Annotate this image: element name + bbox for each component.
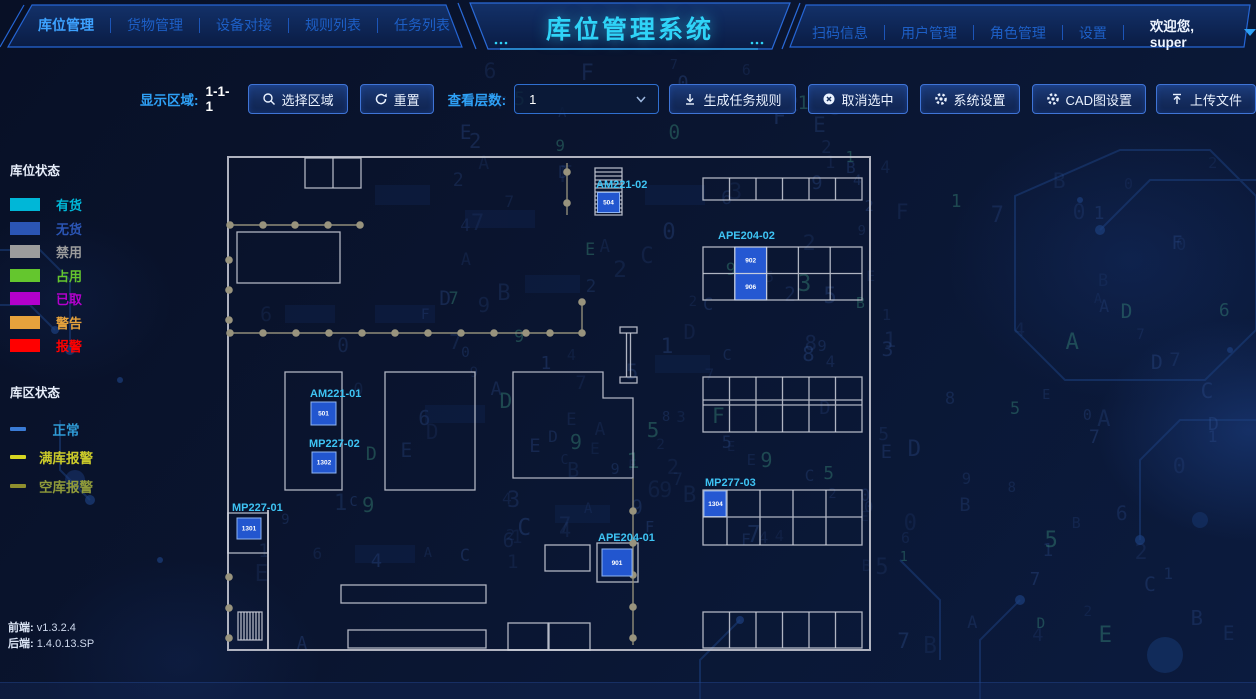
matrix-char: 7 <box>1030 572 1040 589</box>
matrix-char: A <box>1097 408 1110 430</box>
nav-item-settings[interactable]: 设置 <box>1079 23 1107 43</box>
main-nav: 库位管理 货物管理 设备对接 规则列表 任务列表 <box>38 15 450 35</box>
upload-icon <box>1170 92 1184 106</box>
matrix-char: E <box>881 444 892 463</box>
matrix-char: 4 <box>1032 627 1043 646</box>
matrix-char: 1 <box>951 194 962 212</box>
location-label: MP227-01 <box>232 502 283 514</box>
nav-item-location-mgmt[interactable]: 库位管理 <box>38 15 94 35</box>
nav-divider <box>288 18 289 33</box>
location-cell-value: 504 <box>603 200 614 207</box>
status-label: 报警 <box>56 336 82 355</box>
status-label: 有货 <box>56 195 82 214</box>
button-label: 重置 <box>394 90 420 109</box>
matrix-char: 6 <box>901 531 910 546</box>
legend-item-empty-alarm: 空库报警 <box>10 472 98 501</box>
matrix-char: 0 <box>1173 456 1186 478</box>
generate-rules-icon <box>683 92 697 106</box>
nav-divider <box>973 25 974 40</box>
legend-panel: 库位状态 有货 无货 禁用 占用 已取 警告 报警 库区状态 正常 满库报警 <box>10 160 98 500</box>
conveyor-lines <box>225 163 637 645</box>
matrix-char: 7 <box>670 59 678 72</box>
backend-version: 后端: 1.4.0.13.SP <box>8 636 94 652</box>
legend-item-occupied: 占用 <box>10 264 98 288</box>
layers-label: 查看层数: <box>448 89 507 109</box>
system-settings-button[interactable]: 系统设置 <box>920 84 1020 114</box>
matrix-char: B <box>1098 273 1108 290</box>
layers-selected-value: 1 <box>529 92 634 107</box>
matrix-char: B <box>1053 170 1066 191</box>
hatched-area <box>238 612 262 640</box>
matrix-char: 6 <box>484 60 497 81</box>
button-label: 上传文件 <box>1190 90 1242 109</box>
location-label: AM221-01 <box>310 388 361 400</box>
matrix-char: 1 <box>1163 566 1173 582</box>
display-area-value: 1-1-1 <box>206 84 234 114</box>
nav-item-task-list[interactable]: 任务列表 <box>394 15 450 35</box>
matrix-char: 5 <box>1044 529 1057 551</box>
matrix-char: B <box>923 635 937 658</box>
legend-item-warning: 警告 <box>10 311 98 335</box>
matrix-char: 9 <box>555 138 565 154</box>
nav-divider <box>1062 25 1063 40</box>
location-cell-value: 1304 <box>708 501 723 508</box>
location-status-title: 库位状态 <box>10 160 98 179</box>
matrix-char: 2 <box>1083 605 1092 620</box>
matrix-char: 0 <box>1083 409 1092 424</box>
status-color-swatch <box>10 198 40 211</box>
matrix-char: 2 <box>469 131 481 152</box>
matrix-char: 7 <box>991 205 1004 227</box>
user-nav: 扫码信息 用户管理 角色管理 设置 欢迎您, super <box>812 15 1256 50</box>
location-mp227-01[interactable]: MP227-01 1301 <box>232 502 283 539</box>
matrix-char: 1 <box>1094 205 1105 223</box>
frontend-version: 前端: v1.3.2.4 <box>8 620 94 636</box>
footer-band <box>0 682 1256 699</box>
chevron-down-icon <box>634 92 648 106</box>
area-status-title: 库区状态 <box>10 382 98 401</box>
cancel-selection-button[interactable]: 取消选中 <box>808 84 908 114</box>
location-label: APE204-02 <box>718 230 775 242</box>
nav-item-role-mgmt[interactable]: 角色管理 <box>990 23 1046 43</box>
area-status-label: 正常 <box>34 419 98 439</box>
matrix-char: 9 <box>962 472 971 488</box>
matrix-char: 1 <box>884 330 897 351</box>
location-cell-value: 1302 <box>317 460 332 467</box>
legend-item-disabled: 禁用 <box>10 240 98 264</box>
matrix-char: 0 <box>668 123 680 142</box>
status-label: 警告 <box>56 313 82 332</box>
matrix-char: C <box>1144 575 1156 595</box>
cancel-icon <box>822 92 836 106</box>
status-label: 已取 <box>56 289 82 308</box>
layers-select[interactable]: 1 <box>514 84 659 114</box>
status-color-swatch <box>10 339 40 352</box>
reset-button[interactable]: 重置 <box>360 84 434 114</box>
location-am221-01[interactable]: AM221-01 501 <box>310 388 361 425</box>
button-label: CAD图设置 <box>1066 90 1132 109</box>
user-dropdown-caret[interactable] <box>1244 29 1256 36</box>
status-color-swatch <box>10 316 40 329</box>
legend-item-full-alarm: 满库报警 <box>10 443 98 472</box>
rack-grid-ape204-02[interactable]: APE204-02 902 906 <box>703 230 862 300</box>
i-beam-column <box>620 327 637 383</box>
nav-item-rule-list[interactable]: 规则列表 <box>305 15 361 35</box>
legend-item-picked: 已取 <box>10 287 98 311</box>
rack-grid-bottom-right[interactable] <box>703 612 862 648</box>
area-line-swatch <box>10 455 26 459</box>
matrix-char: 1 <box>1208 429 1218 445</box>
legend-item-alarm: 报警 <box>10 334 98 358</box>
gear-icon <box>1046 92 1060 106</box>
matrix-char: F <box>896 202 909 223</box>
matrix-char: D <box>1208 416 1219 434</box>
rack-grid-middle-right[interactable] <box>703 377 862 432</box>
nav-item-device-dock[interactable]: 设备对接 <box>216 15 272 35</box>
area-status-legend: 库区状态 正常 满库报警 空库报警 <box>10 382 98 501</box>
backend-version-label: 后端: <box>8 638 34 650</box>
legend-item-no-goods: 无货 <box>10 217 98 241</box>
nav-divider <box>884 25 885 40</box>
status-color-swatch <box>10 245 40 258</box>
status-color-swatch <box>10 292 40 305</box>
matrix-char: A <box>1099 299 1109 316</box>
button-label: 取消选中 <box>842 90 894 109</box>
display-area-label: 显示区域: <box>140 89 199 109</box>
matrix-char: D <box>1151 353 1163 373</box>
search-icon <box>262 92 276 106</box>
location-mp227-02[interactable]: MP227-02 1302 <box>309 438 360 473</box>
status-color-swatch <box>10 222 40 235</box>
matrix-char: 3 <box>881 340 893 360</box>
button-label: 生成任务规则 <box>703 90 781 109</box>
matrix-char: 0 <box>904 513 917 535</box>
matrix-char: 0 <box>1176 237 1186 254</box>
location-cell-value: 902 <box>745 258 756 265</box>
welcome-text: 欢迎您, super <box>1150 15 1230 50</box>
location-ape204-01[interactable]: APE204-01 901 <box>598 532 655 576</box>
matrix-char: B <box>959 497 970 516</box>
gear-icon <box>934 92 948 106</box>
matrix-char: B <box>1191 608 1203 629</box>
matrix-char: F <box>1172 235 1183 253</box>
nav-item-goods-mgmt[interactable]: 货物管理 <box>127 15 183 35</box>
nav-divider <box>377 18 378 33</box>
matrix-char: 0 <box>1073 202 1086 223</box>
backend-version-value: 1.4.0.13.SP <box>37 638 95 650</box>
frontend-version-label: 前端: <box>8 622 34 634</box>
matrix-char: 4 <box>880 160 890 176</box>
nav-item-user-mgmt[interactable]: 用户管理 <box>901 23 957 43</box>
page-title: 库位管理系统 <box>470 10 790 46</box>
matrix-char: 7 <box>1169 351 1180 370</box>
generate-task-rules-button[interactable]: 生成任务规则 <box>669 84 795 114</box>
matrix-char: E <box>1098 624 1112 647</box>
location-label: MP277-03 <box>705 477 756 489</box>
matrix-char: 7 <box>1089 429 1100 447</box>
location-cell-value: 901 <box>612 560 623 567</box>
refresh-icon <box>374 92 388 106</box>
ghost-racks <box>285 185 710 563</box>
nav-divider <box>199 18 200 33</box>
matrix-char: 2 <box>1208 156 1217 171</box>
matrix-char: E <box>813 115 826 136</box>
select-area-button[interactable]: 选择区域 <box>248 84 348 114</box>
button-label: 选择区域 <box>282 90 334 109</box>
legend-item-normal: 正常 <box>10 415 98 444</box>
toolbar: 显示区域: 1-1-1 选择区域 重置 查看层数: 1 生成任务规则 取消选中 … <box>140 84 1256 114</box>
matrix-char: 6 <box>1219 302 1230 320</box>
matrix-char: 8 <box>945 391 955 408</box>
matrix-char: 1 <box>900 551 908 564</box>
matrix-char: A <box>1066 331 1079 353</box>
button-label: 系统设置 <box>954 90 1006 109</box>
matrix-char: 4 <box>1014 321 1025 340</box>
matrix-char: 5 <box>1010 400 1020 417</box>
nav-divider <box>110 18 111 33</box>
legend-item-has-goods: 有货 <box>10 193 98 217</box>
matrix-char: A <box>1094 293 1102 307</box>
matrix-char: D <box>1121 302 1133 322</box>
location-label: AM221-02 <box>596 179 647 191</box>
rack-grid-top-right[interactable] <box>703 178 862 200</box>
matrix-char: B <box>1072 517 1081 532</box>
location-label: APE204-01 <box>598 532 655 544</box>
area-status-label: 满库报警 <box>34 447 98 467</box>
nav-item-scan-info[interactable]: 扫码信息 <box>812 23 868 43</box>
location-cell-value: 906 <box>745 284 756 291</box>
matrix-char: 1 <box>1042 542 1053 560</box>
rack-grid-mp277-03[interactable]: MP277-03 1304 <box>703 477 862 545</box>
matrix-char: 0 <box>1124 178 1133 193</box>
matrix-char: 7 <box>1136 329 1144 343</box>
location-cell-value: 1301 <box>242 526 257 533</box>
matrix-char: E <box>1223 624 1235 644</box>
matrix-char: E <box>1042 389 1050 402</box>
matrix-char: 6 <box>1116 504 1128 523</box>
user-menu[interactable]: 欢迎您, super <box>1150 15 1256 50</box>
matrix-char: 5 <box>875 557 888 579</box>
matrix-char: 7 <box>897 630 910 651</box>
matrix-char: 5 <box>878 426 889 444</box>
matrix-char: C <box>1201 380 1214 401</box>
location-cell-value: 501 <box>318 411 329 418</box>
matrix-char: 2 <box>1135 542 1148 563</box>
matrix-char: 6 <box>742 64 751 79</box>
status-label: 禁用 <box>56 242 82 261</box>
matrix-char: D <box>908 438 921 460</box>
matrix-char: F <box>581 63 594 85</box>
matrix-char: E <box>460 123 472 142</box>
status-color-swatch <box>10 269 40 282</box>
area-line-swatch <box>10 427 26 431</box>
area-status-label: 空库报警 <box>34 476 98 496</box>
matrix-char: D <box>1036 617 1045 631</box>
location-label: MP227-02 <box>309 438 360 450</box>
header-bar: 库位管理 货物管理 设备对接 规则列表 任务列表 库位管理系统 扫码信息 用户管… <box>0 0 1256 54</box>
matrix-char: 8 <box>1008 482 1016 496</box>
matrix-char: 1 <box>882 308 891 323</box>
warehouse-map[interactable]: APE204-02 902 906 MP277-03 1304 504 AM22… <box>225 155 875 655</box>
cad-settings-button[interactable]: CAD图设置 <box>1032 84 1146 114</box>
frontend-version-value: v1.3.2.4 <box>37 622 76 634</box>
upload-file-button[interactable]: 上传文件 <box>1156 84 1256 114</box>
nav-divider <box>1123 25 1124 40</box>
area-line-swatch <box>10 484 26 488</box>
matrix-char: A <box>967 615 977 632</box>
status-label: 无货 <box>56 219 82 238</box>
status-label: 占用 <box>56 266 82 285</box>
version-info: 前端: v1.3.2.4 后端: 1.4.0.13.SP <box>8 620 94 652</box>
